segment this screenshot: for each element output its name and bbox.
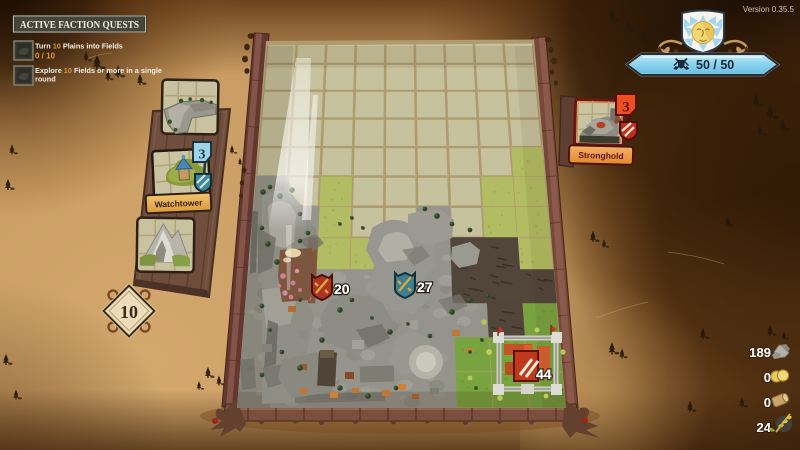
svg-text:Turn 10 Plains into Fields: Turn 10 Plains into Fields (35, 42, 123, 51)
svg-text:Version 0.35.5: Version 0.35.5 (743, 5, 795, 14)
svg-text:20: 20 (334, 281, 350, 297)
svg-text:44: 44 (536, 366, 552, 382)
svg-text:3: 3 (199, 148, 206, 163)
svg-text:Stronghold: Stronghold (578, 150, 624, 161)
svg-text:0: 0 (764, 370, 771, 385)
svg-text:27: 27 (417, 279, 433, 295)
svg-text:10: 10 (120, 302, 138, 322)
svg-text:ACTIVE FACTION QUESTS: ACTIVE FACTION QUESTS (20, 19, 139, 31)
svg-text:0: 0 (764, 395, 771, 410)
svg-text:3: 3 (622, 100, 630, 116)
svg-text:50 / 50: 50 / 50 (696, 58, 734, 72)
svg-text:0 / 10: 0 / 10 (35, 52, 56, 61)
svg-text:24: 24 (757, 420, 772, 435)
svg-text:Watchtower: Watchtower (154, 197, 203, 209)
svg-text:189: 189 (749, 345, 771, 360)
svg-text:round: round (35, 74, 56, 83)
